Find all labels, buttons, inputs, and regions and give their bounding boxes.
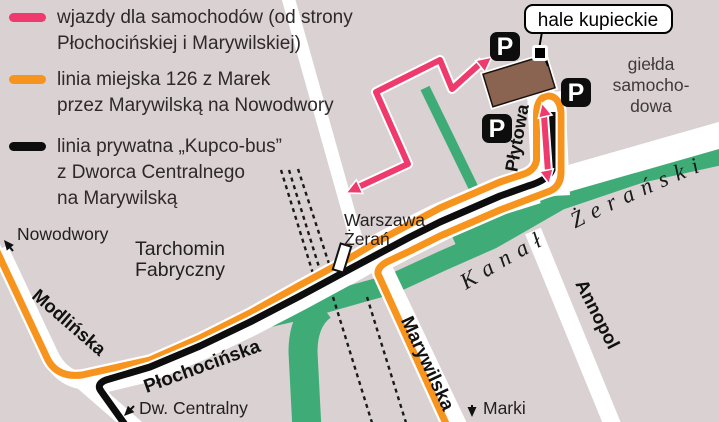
svg-text:Tarchomin: Tarchomin [135,238,225,260]
svg-text:wjazdy dla samochodów (od stro: wjazdy dla samochodów (od strony [56,7,353,28]
svg-text:Płochocińskiej i Marywilskiej): Płochocińskiej i Marywilskiej) [57,33,301,54]
svg-text:Fabryczny: Fabryczny [135,259,225,281]
svg-text:samocho-: samocho- [613,75,690,95]
svg-text:Dw. Centralny: Dw. Centralny [139,398,248,418]
svg-text:przez Marywilską na Nowodwory: przez Marywilską na Nowodwory [57,95,334,116]
svg-text:Marki: Marki [483,398,526,418]
svg-text:P: P [489,115,506,143]
svg-text:P: P [497,33,514,61]
svg-text:linia prywatna „Kupco-bus”: linia prywatna „Kupco-bus” [57,136,282,157]
svg-text:linia miejska 126 z Marek: linia miejska 126 z Marek [57,69,271,90]
svg-text:z Dworca Centralnego: z Dworca Centralnego [57,162,245,183]
svg-text:hale kupieckie: hale kupieckie [538,10,658,31]
svg-text:Nowodwory: Nowodwory [17,224,109,244]
svg-text:Warszawa: Warszawa [344,210,425,230]
svg-text:Żerań: Żerań [344,229,390,249]
svg-text:giełda: giełda [628,54,675,74]
svg-text:P: P [568,79,585,107]
svg-text:dowa: dowa [630,96,672,116]
svg-text:na Marywilską: na Marywilską [57,188,178,209]
